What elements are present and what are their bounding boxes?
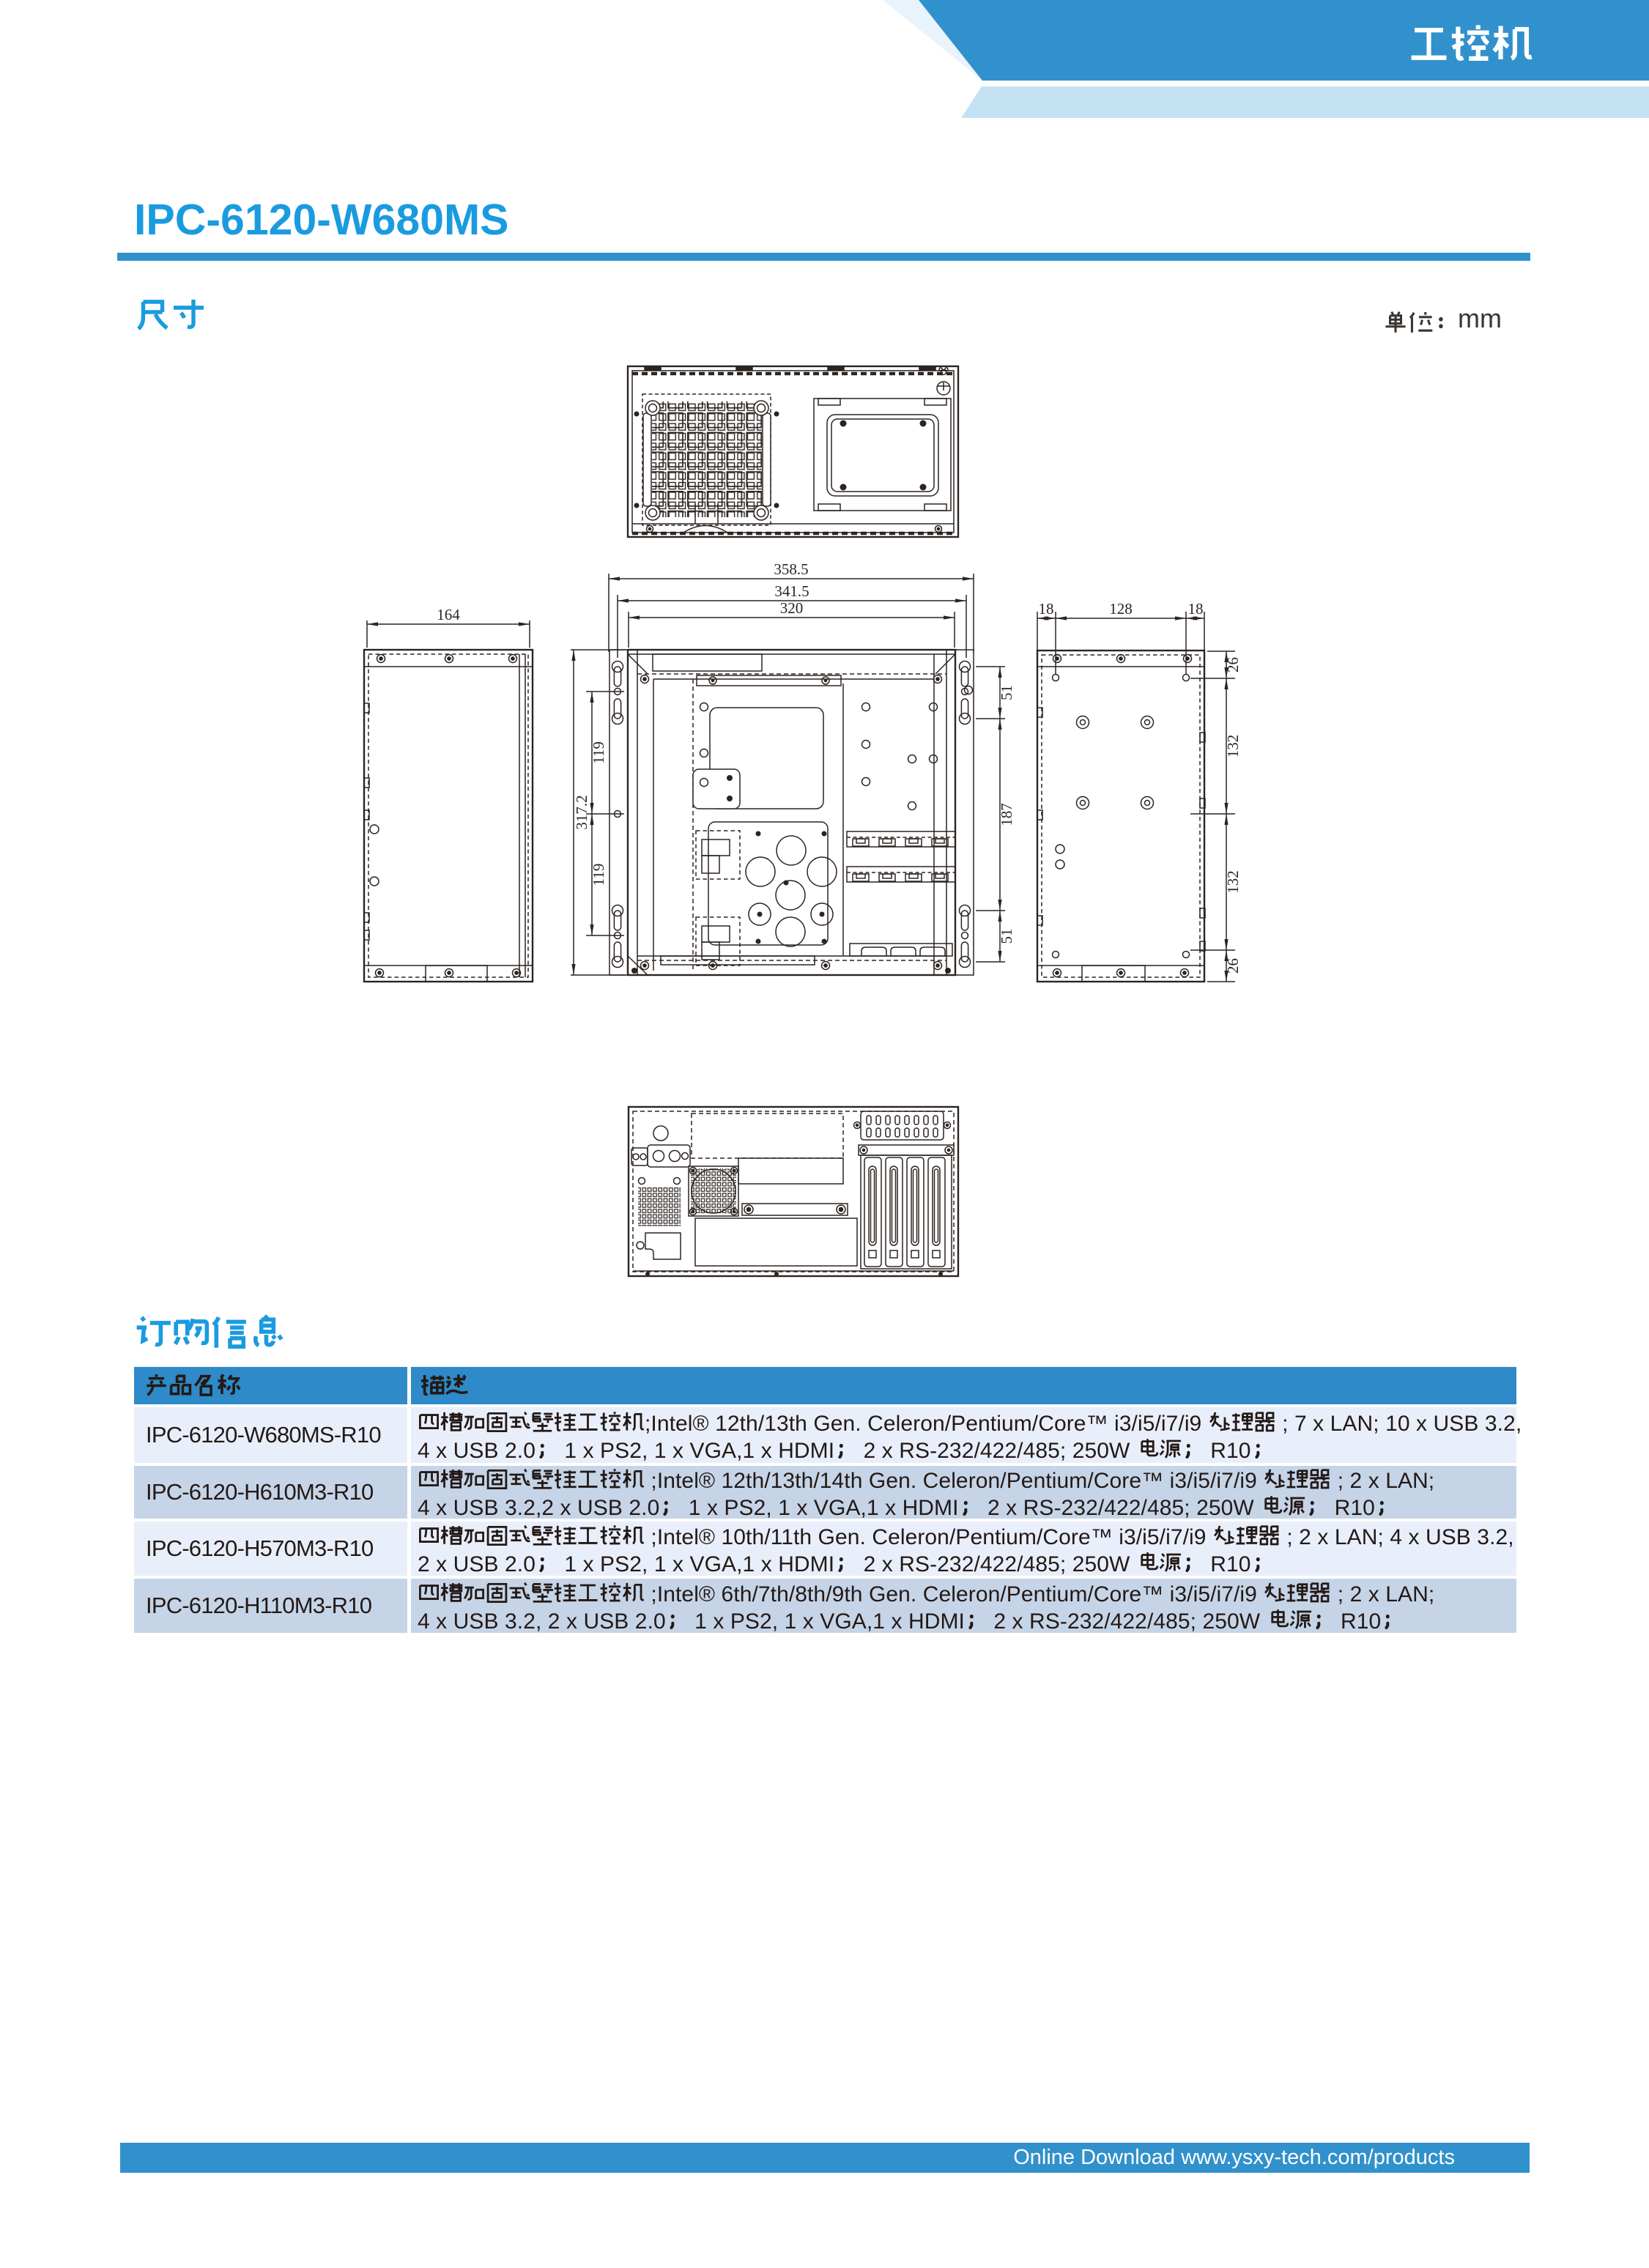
svg-text:187: 187 [998,803,1015,826]
svg-text:18: 18 [1039,600,1054,618]
svg-text:341.5: 341.5 [774,582,809,600]
svg-text:51: 51 [998,685,1015,700]
svg-text:26: 26 [1224,958,1242,974]
svg-text:119: 119 [590,741,607,764]
svg-text:317.2: 317.2 [573,795,590,829]
svg-text:128: 128 [1109,600,1133,618]
svg-text:132: 132 [1224,870,1242,894]
svg-text:18: 18 [1188,600,1204,618]
svg-text:51: 51 [998,929,1015,944]
svg-text:358.5: 358.5 [774,560,808,578]
svg-text:26: 26 [1224,657,1242,672]
svg-text:119: 119 [590,864,607,886]
svg-text:132: 132 [1224,735,1242,758]
svg-text:164: 164 [437,606,460,623]
svg-text:320: 320 [780,599,804,617]
